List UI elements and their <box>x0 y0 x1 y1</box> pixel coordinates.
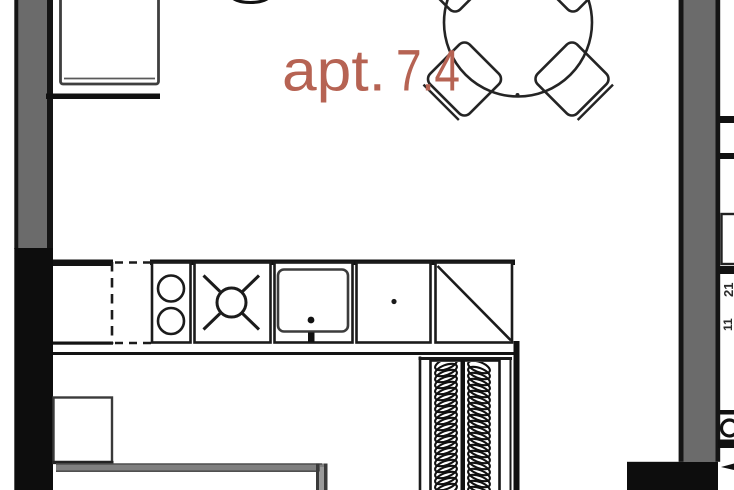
svg-text:apt.: apt. <box>282 39 386 104</box>
svg-text:21: 21 <box>721 283 734 297</box>
svg-text:11: 11 <box>721 318 734 331</box>
svg-text:7.4: 7.4 <box>396 39 460 104</box>
